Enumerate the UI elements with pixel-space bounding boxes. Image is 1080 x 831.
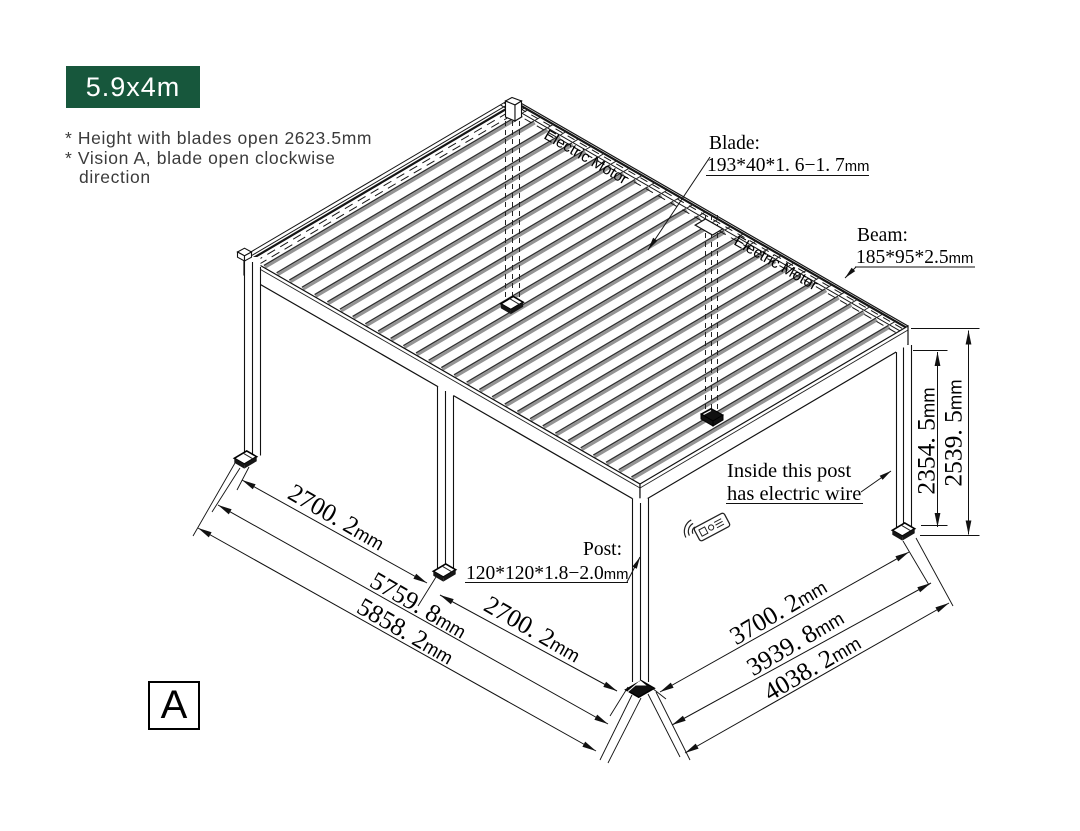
svg-text:has electric wire: has electric wire — [727, 483, 861, 505]
svg-text:193*40*1. 6−1. 7mm: 193*40*1. 6−1. 7mm — [707, 155, 869, 176]
svg-text:2354. 5mm: 2354. 5mm — [912, 387, 941, 494]
svg-text:2700. 2mm: 2700. 2mm — [283, 478, 390, 557]
svg-text:2700. 2mm: 2700. 2mm — [479, 590, 586, 669]
svg-text:185*95*2.5mm: 185*95*2.5mm — [856, 247, 973, 268]
svg-text:Post:: Post: — [583, 539, 622, 560]
svg-text:Blade:: Blade: — [709, 133, 760, 154]
svg-text:Inside this post: Inside this post — [727, 460, 851, 482]
svg-text:Beam:: Beam: — [857, 225, 908, 246]
svg-text:2539. 5mm: 2539. 5mm — [939, 379, 968, 486]
svg-text:120*120*1.8−2.0mm: 120*120*1.8−2.0mm — [466, 563, 628, 584]
